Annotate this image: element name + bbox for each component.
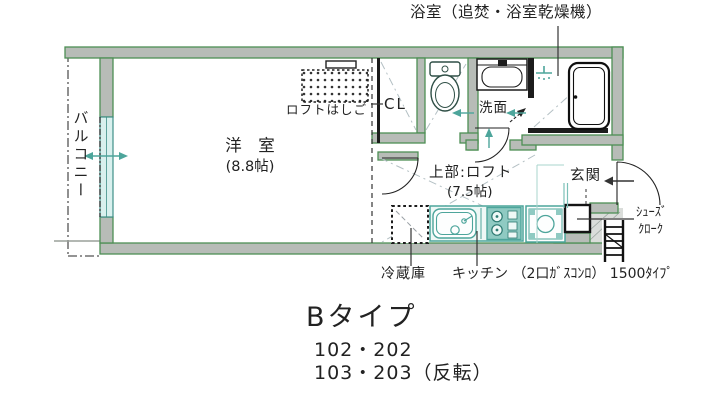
- western-room-label: 洋 室: [204, 137, 296, 155]
- washroom-door-arc: [475, 128, 509, 162]
- upper-loft-label: 上部:ロフト: [429, 166, 512, 182]
- stairs-icon: [602, 218, 626, 264]
- bathroom-callout: 浴室（追焚・浴室乾燥機）: [410, 4, 602, 21]
- toilet-icon: [430, 62, 460, 111]
- shoe-closet-label-line1: ｼｭｰｽﾞ: [636, 205, 667, 219]
- refrigerator-label: 冷蔵庫: [381, 267, 426, 282]
- floor-plan: 浴室（追焚・浴室乾燥機） バルコニー 洋 室 (8.8帖) ロフトはしご CL …: [0, 0, 720, 412]
- balcony-window: [100, 117, 113, 217]
- entrance-door-arc: [617, 162, 660, 205]
- balcony-label: バルコニー: [72, 110, 89, 200]
- loft-ladder-label: ロフトはしご: [286, 103, 367, 117]
- loft-door-arc: [382, 158, 418, 194]
- unit-numbers-line2: 103・203（反転）: [314, 363, 493, 384]
- upper-loft-size: (7.5帖): [447, 185, 493, 200]
- loft-ladder-area: [302, 61, 368, 102]
- plan-type-title: Bタイプ: [306, 303, 418, 333]
- entrance-label: 玄関: [570, 169, 601, 185]
- unit-numbers-line1: 102・202: [314, 340, 413, 361]
- entrance-arrow: [604, 177, 634, 186]
- stove-icon: [487, 208, 521, 240]
- refrigerator-outline: [392, 206, 428, 243]
- washbasin-icon: [477, 59, 527, 90]
- bathtub-icon: [569, 63, 609, 129]
- western-room-size: (8.8帖): [204, 160, 296, 176]
- kitchen-label: キッチン （2口ｶﾞｽｺﾝﾛ） 1500ﾀｲﾌﾟ: [452, 267, 673, 282]
- shower-icon: [536, 66, 552, 80]
- shoe-closet-label-line2: ｸﾛｰｸ: [638, 222, 663, 236]
- washroom-label: 洗面: [479, 101, 508, 116]
- washer-icon: [526, 206, 565, 242]
- closet-label: CL: [384, 96, 407, 113]
